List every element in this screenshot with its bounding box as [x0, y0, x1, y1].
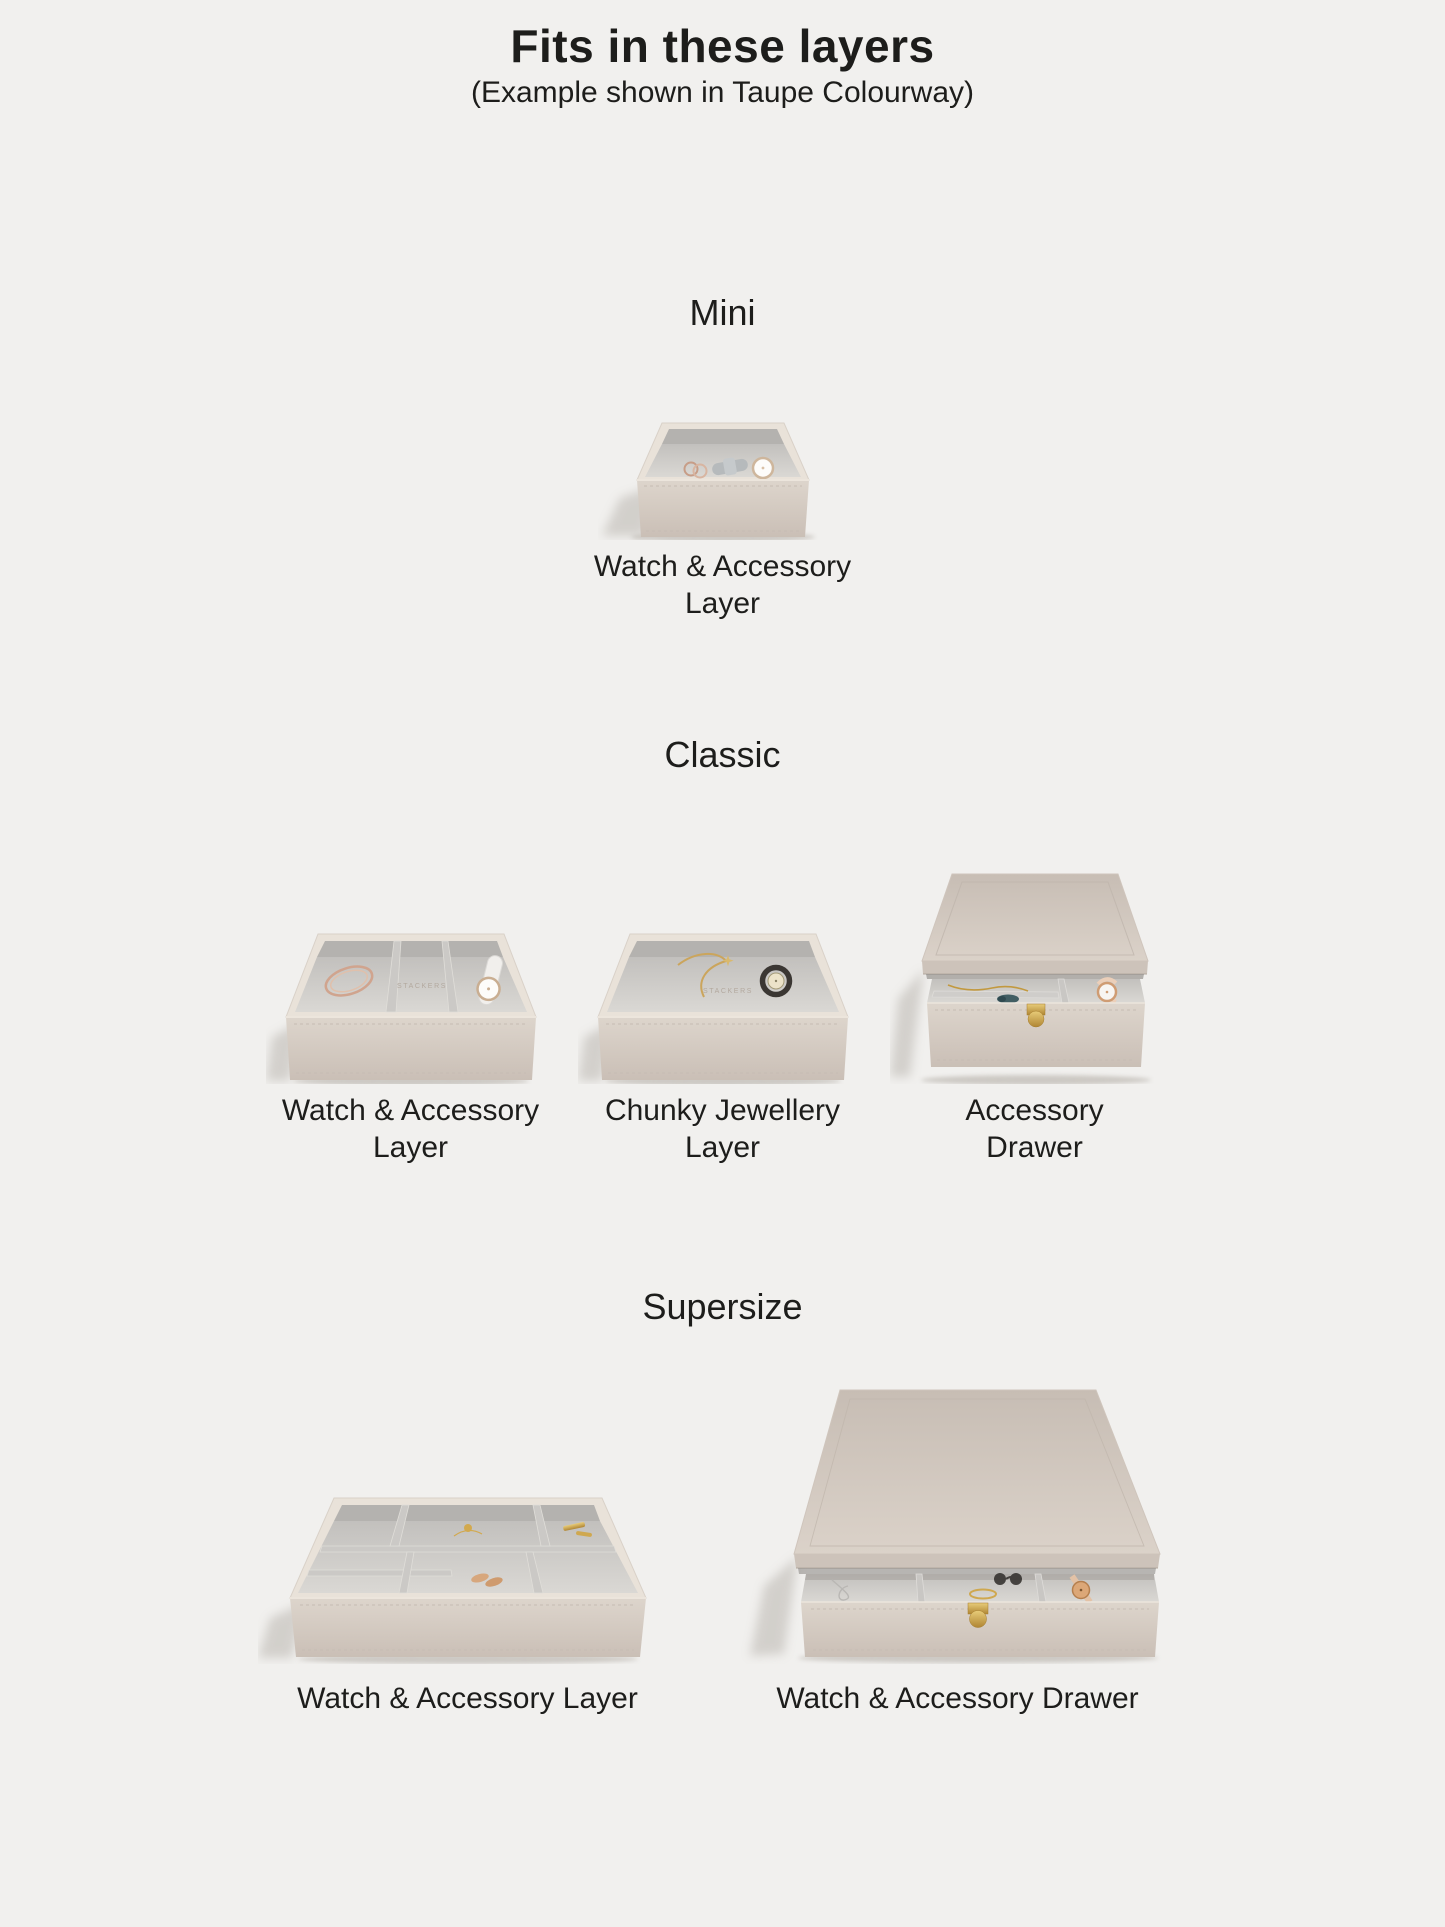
product-classic-accessory-drawer: Accessory Drawer [879, 869, 1191, 1166]
section-heading-mini: Mini [0, 294, 1445, 332]
supersize-product-row: Watch & Accessory Layer [0, 1386, 1445, 1717]
product-classic-chunky-jewellery-layer: STACKERS Chunky Jewellery Layer [567, 869, 879, 1166]
product-supersize-watch-accessory-layer: Watch & Accessory Layer [253, 1386, 683, 1717]
product-classic-watch-accessory-layer: STACKERS Watch & Accessory Layer [255, 869, 567, 1166]
mini-product-row: Watch & Accessory Layer [0, 420, 1445, 622]
divider [307, 1570, 452, 1576]
product-caption: Watch & Accessory Layer [261, 1092, 561, 1166]
gold-clasp [968, 1603, 988, 1628]
embossed-brand-text: STACKERS [396, 983, 446, 990]
page-title: Fits in these layers [0, 22, 1445, 70]
product-caption: Accessory Drawer [945, 1092, 1125, 1166]
white-watch [753, 458, 773, 478]
gold-clasp [1027, 1004, 1045, 1027]
classic-product-row: STACKERS Watch & Accessory Layer [0, 869, 1445, 1166]
header: Fits in these layers (Example shown in T… [0, 0, 1445, 110]
product-caption: Watch & Accessory Layer [573, 548, 873, 622]
product-mini-watch-accessory-layer: Watch & Accessory Layer [573, 420, 873, 622]
drawer-lid [794, 1390, 1160, 1554]
product-photo-supersize-drawer [728, 1386, 1188, 1664]
drawer-lid [922, 874, 1148, 961]
product-supersize-watch-accessory-drawer: Watch & Accessory Drawer [723, 1386, 1193, 1717]
section-classic: Classic STACKERS [0, 736, 1445, 1166]
product-photo-classic-watch-layer: STACKERS [266, 869, 556, 1084]
product-photo-classic-drawer [890, 869, 1180, 1084]
divider [320, 1546, 616, 1552]
product-caption: Chunky Jewellery Layer [573, 1092, 873, 1166]
product-caption: Watch & Accessory Drawer [776, 1680, 1138, 1717]
teal-gem-brooch [997, 995, 1019, 1004]
section-heading-classic: Classic [0, 736, 1445, 774]
section-supersize: Supersize [0, 1288, 1445, 1717]
page-background: Fits in these layers (Example shown in T… [0, 0, 1445, 1927]
product-photo-mini-open-layer [598, 420, 848, 540]
embossed-brand-text: STACKERS [702, 988, 752, 995]
product-photo-supersize-layer [258, 1386, 678, 1664]
section-mini: Mini [0, 294, 1445, 622]
product-caption: Watch & Accessory Layer [297, 1680, 638, 1717]
section-heading-supersize: Supersize [0, 1288, 1445, 1326]
product-photo-classic-chunky-layer: STACKERS [578, 869, 868, 1084]
page-subtitle: (Example shown in Taupe Colourway) [0, 76, 1445, 110]
divider [932, 991, 1059, 998]
